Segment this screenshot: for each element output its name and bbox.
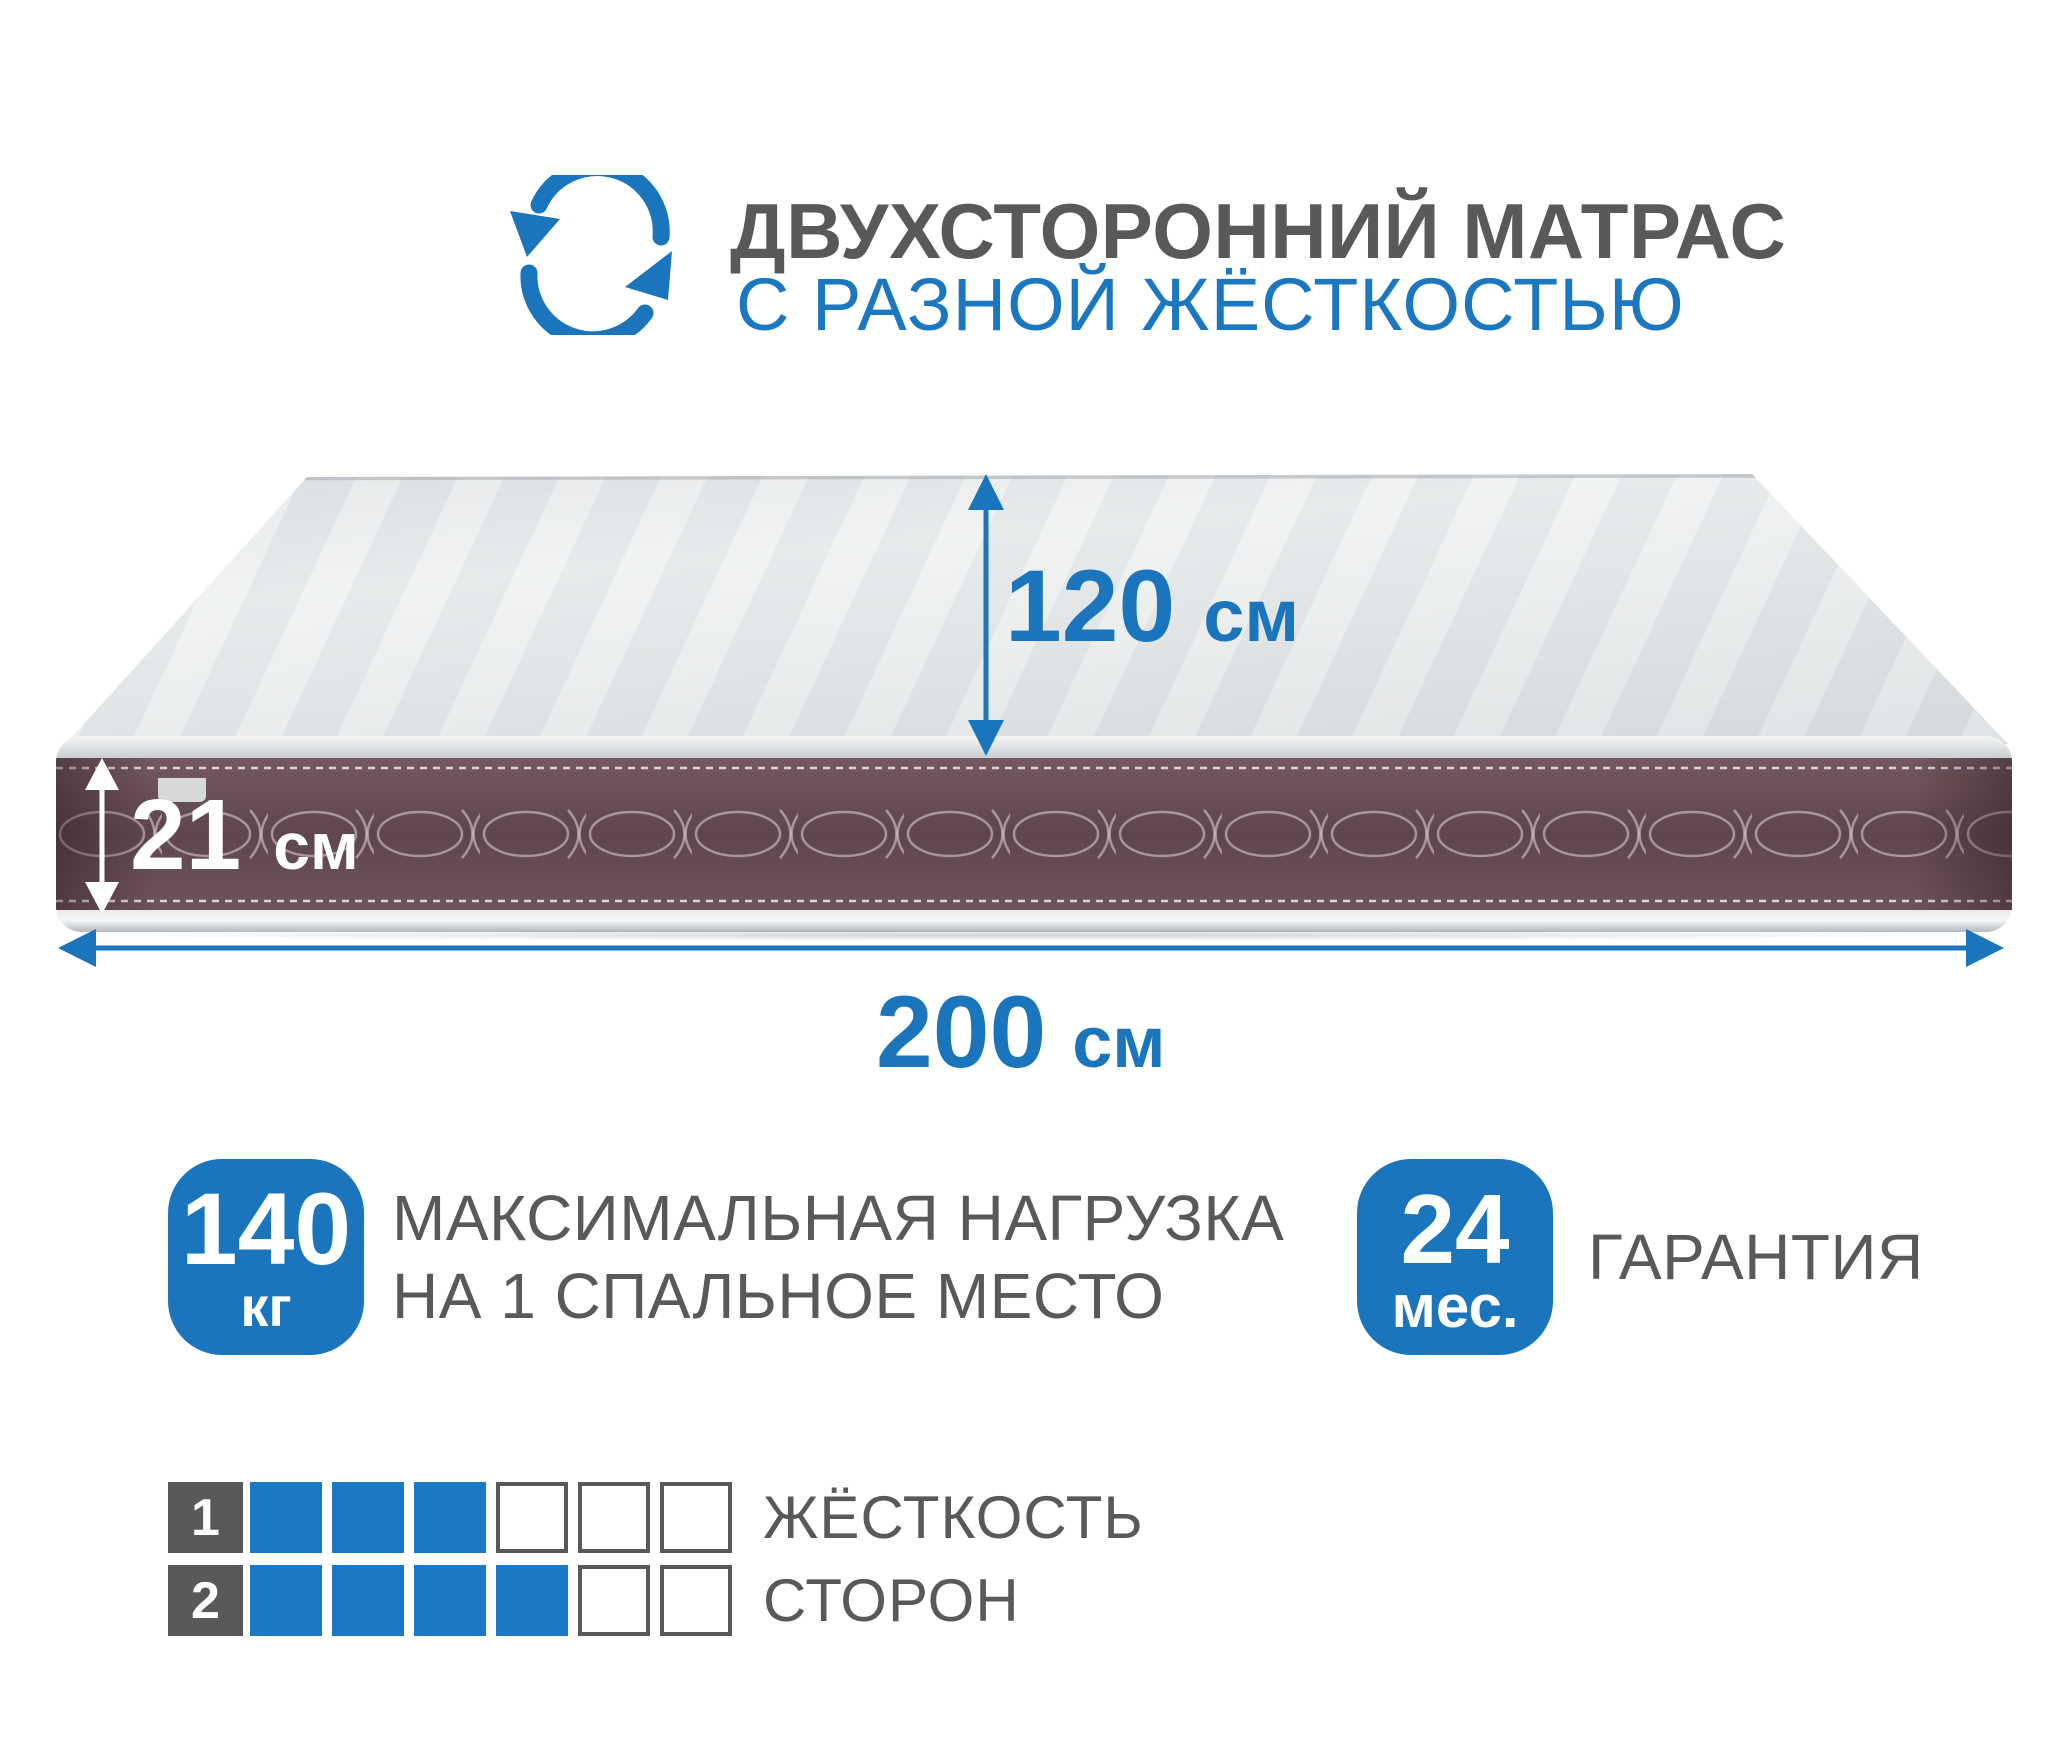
thickness-dimension-label: 21 см	[130, 778, 359, 893]
firmness-cell-filled	[414, 1565, 486, 1636]
firmness-label-line2: СТОРОН	[763, 1565, 1020, 1636]
width-unit: см	[1072, 1002, 1165, 1084]
firmness-cell-empty	[660, 1482, 732, 1553]
warranty-unit: мес.	[1391, 1279, 1518, 1335]
warranty-label-text: ГАРАНТИЯ	[1588, 1218, 1924, 1296]
page-subtitle: С РАЗНОЙ ЖЁСТКОСТЬЮ	[736, 262, 1685, 347]
depth-dimension-label: 120 см	[1005, 548, 1299, 665]
firmness-cell-filled	[250, 1565, 322, 1636]
firmness-scale: 12	[168, 1482, 742, 1648]
max-load-label-line2: НА 1 СПАЛЬНОЕ МЕСТО	[392, 1257, 1284, 1335]
mattress-infographic: ДВУХСТОРОННИЙ МАТРАС С РАЗНОЙ ЖЁСТКОСТЬЮ	[0, 0, 2048, 1757]
firmness-row-number: 1	[168, 1482, 243, 1553]
thickness-unit: см	[273, 808, 359, 884]
firmness-cell-filled	[332, 1482, 404, 1553]
thickness-dimension-arrow	[74, 756, 130, 916]
warranty-label: ГАРАНТИЯ	[1588, 1159, 1924, 1355]
firmness-cell-filled	[496, 1565, 568, 1636]
width-value: 200	[876, 974, 1046, 1091]
firmness-cell-filled	[414, 1482, 486, 1553]
warranty-badge: 24 мес.	[1357, 1159, 1553, 1355]
max-load-unit: кг	[240, 1279, 291, 1335]
firmness-row-number: 2	[168, 1565, 243, 1636]
max-load-label-line1: МАКСИМАЛЬНАЯ НАГРУЗКА	[392, 1179, 1284, 1257]
firmness-cell-filled	[332, 1565, 404, 1636]
rotate-arrows-icon	[505, 175, 680, 335]
max-load-value: 140	[181, 1179, 351, 1279]
firmness-cell-empty	[496, 1482, 568, 1553]
max-load-label: МАКСИМАЛЬНАЯ НАГРУЗКА НА 1 СПАЛЬНОЕ МЕСТ…	[392, 1159, 1284, 1355]
firmness-row: 1	[168, 1482, 742, 1553]
depth-value: 120	[1005, 548, 1175, 665]
firmness-cell-empty	[578, 1565, 650, 1636]
firmness-cell-empty	[660, 1565, 732, 1636]
thickness-value: 21	[130, 778, 241, 893]
depth-unit: см	[1203, 573, 1299, 658]
firmness-cell-filled	[250, 1482, 322, 1553]
max-load-badge: 140 кг	[168, 1159, 364, 1355]
firmness-label-line1: ЖЁСТКОСТЬ	[763, 1482, 1144, 1553]
top-piping	[56, 736, 2012, 760]
firmness-cell-empty	[578, 1482, 650, 1553]
firmness-row: 2	[168, 1565, 742, 1636]
width-dimension-label: 200 см	[876, 974, 1166, 1091]
warranty-value: 24	[1400, 1179, 1509, 1279]
width-dimension-arrow	[54, 916, 2008, 980]
